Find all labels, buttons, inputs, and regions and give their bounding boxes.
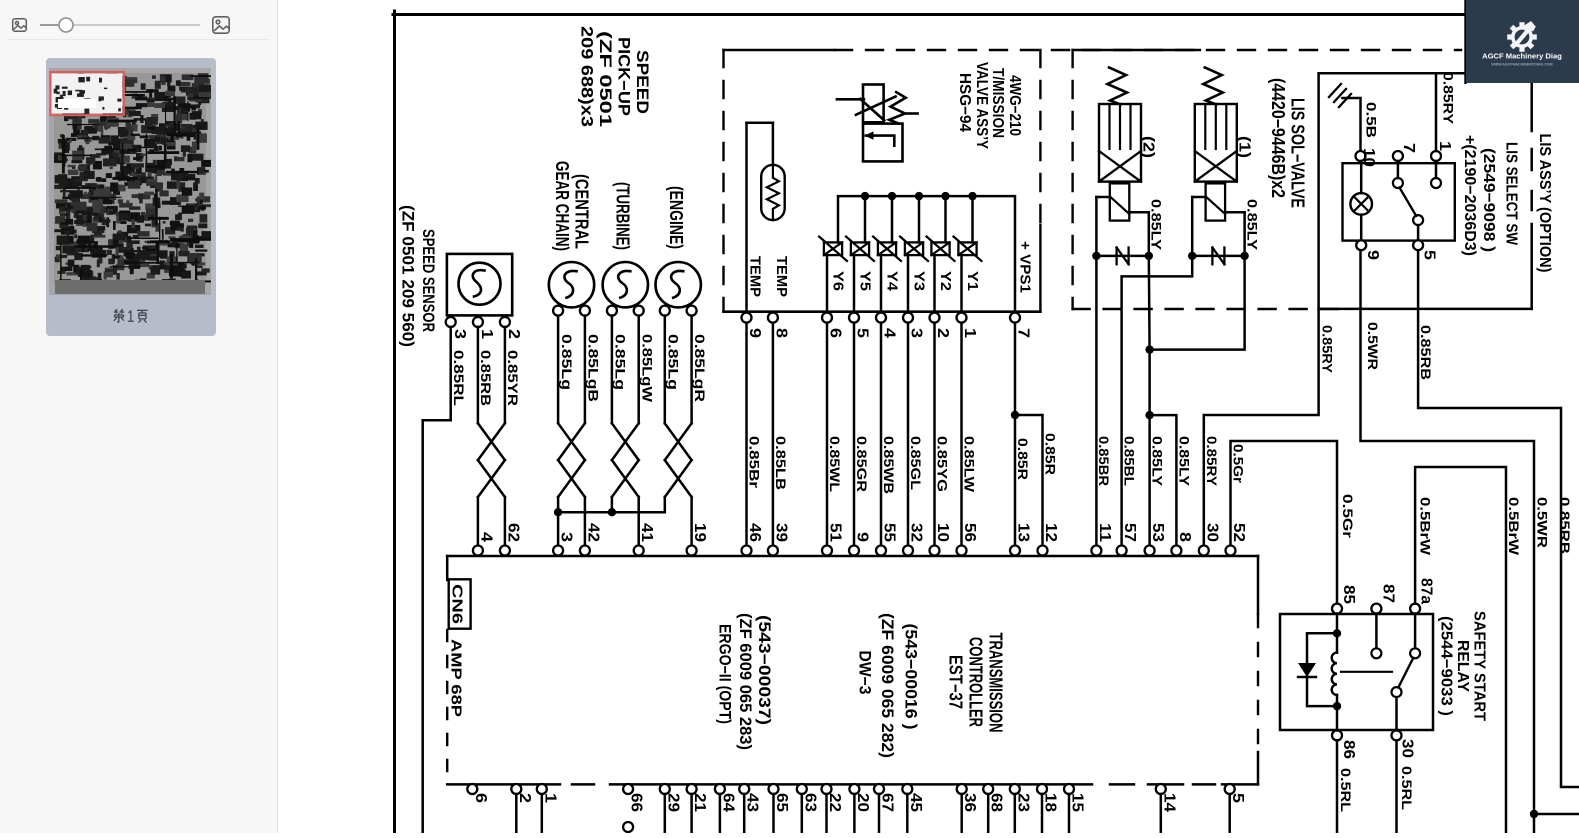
svg-text:62: 62 (504, 523, 521, 542)
svg-text:3: 3 (908, 328, 925, 338)
svg-text:(CENTRAL: (CENTRAL (572, 174, 592, 249)
svg-text:87: 87 (1380, 584, 1397, 603)
svg-text:0.5BrW: 0.5BrW (1506, 497, 1522, 556)
svg-text:64: 64 (719, 793, 736, 812)
svg-text:0.5WR: 0.5WR (1535, 497, 1551, 548)
svg-text:(4420−9446B)x2: (4420−9446B)x2 (1268, 78, 1288, 198)
svg-text:9: 9 (746, 328, 763, 338)
svg-text:0.85Br: 0.85Br (747, 436, 763, 489)
svg-text:5: 5 (1421, 250, 1438, 260)
svg-text:Y1: Y1 (964, 271, 981, 291)
svg-text:0.85BR: 0.85BR (1096, 436, 1112, 486)
svg-text:SAFETY START: SAFETY START (1471, 611, 1488, 721)
svg-text:0.85LgR: 0.85LgR (692, 334, 708, 402)
svg-text:1: 1 (541, 793, 558, 803)
svg-text:0.85R: 0.85R (1015, 438, 1031, 480)
svg-text:4: 4 (881, 328, 898, 338)
svg-text:0.85LB: 0.85LB (773, 436, 789, 490)
svg-text:0.85RY: 0.85RY (1320, 325, 1336, 374)
svg-text:209 688)x3: 209 688)x3 (578, 26, 597, 127)
svg-text:(2549−9098 ): (2549−9098 ) (1480, 148, 1497, 252)
svg-text:20: 20 (854, 793, 871, 812)
svg-text:0.85YR: 0.85YR (505, 350, 521, 406)
svg-text:0.85LY: 0.85LY (1176, 436, 1192, 487)
svg-text:Y5: Y5 (857, 271, 874, 291)
svg-text:66: 66 (628, 793, 645, 812)
svg-text:TRANSMISSION: TRANSMISSION (986, 633, 1006, 733)
svg-text:0.85LY: 0.85LY (1149, 199, 1165, 251)
svg-text:Y3: Y3 (911, 271, 928, 291)
svg-text:65: 65 (773, 793, 790, 812)
svg-text:6: 6 (472, 793, 489, 803)
svg-text:0.85LY: 0.85LY (1150, 436, 1166, 487)
svg-text:22: 22 (826, 793, 843, 812)
svg-text:SPEED: SPEED (633, 50, 652, 114)
svg-text:52: 52 (1230, 523, 1247, 542)
svg-text:0.85GL: 0.85GL (908, 436, 924, 491)
svg-text:5: 5 (854, 328, 871, 338)
svg-text:EST−37: EST−37 (946, 655, 966, 709)
svg-text:36: 36 (961, 793, 978, 812)
svg-text:51: 51 (827, 523, 844, 542)
svg-text:AGCF Machinery Diag: AGCF Machinery Diag (1482, 52, 1562, 61)
svg-text:0.5B: 0.5B (1364, 102, 1380, 138)
svg-text:Y6: Y6 (830, 271, 847, 291)
svg-text:(1): (1) (1235, 136, 1252, 158)
svg-text:0.85R: 0.85R (1043, 433, 1059, 475)
svg-text:23: 23 (1014, 793, 1031, 812)
svg-text:3: 3 (558, 532, 575, 542)
svg-text:6: 6 (827, 328, 844, 338)
svg-text:TEMP: TEMP (773, 256, 790, 297)
svg-text:13: 13 (1015, 523, 1032, 542)
svg-text:0.85RB: 0.85RB (1557, 497, 1573, 554)
svg-text:45: 45 (907, 793, 924, 812)
svg-text:1: 1 (478, 329, 495, 339)
svg-text:(2): (2) (1140, 136, 1157, 158)
svg-text:0.5RL: 0.5RL (1399, 766, 1415, 811)
svg-text:(543−00016 ): (543−00016 ) (902, 624, 921, 730)
svg-text:19: 19 (691, 523, 708, 542)
svg-text:3: 3 (451, 329, 468, 339)
svg-text:(543−00037): (543−00037) (755, 615, 774, 725)
svg-text:0.85LW: 0.85LW (962, 436, 978, 493)
svg-text:AMP 68P: AMP 68P (448, 639, 465, 717)
svg-text:14: 14 (1160, 793, 1177, 812)
svg-text:56: 56 (961, 523, 978, 542)
svg-text:0.85WB: 0.85WB (881, 436, 897, 494)
svg-text:2: 2 (516, 793, 533, 803)
svg-text:PICK−UP: PICK−UP (615, 37, 634, 116)
svg-text:43: 43 (744, 793, 761, 812)
svg-text:9: 9 (854, 532, 871, 542)
svg-text:0.85BL: 0.85BL (1122, 436, 1138, 486)
svg-text:0.85LgW: 0.85LgW (639, 334, 655, 403)
svg-text:57: 57 (1121, 523, 1138, 542)
svg-text:0.85Lg: 0.85Lg (559, 334, 575, 390)
svg-text:(ZF 0501 209 560): (ZF 0501 209 560) (399, 205, 418, 347)
svg-text:0.5Gr: 0.5Gr (1231, 444, 1247, 484)
svg-text:1: 1 (1436, 141, 1453, 151)
svg-text:39: 39 (772, 523, 789, 542)
svg-text:0.85RY: 0.85RY (1204, 436, 1220, 487)
svg-text:GEAR CHAIN): GEAR CHAIN) (552, 161, 572, 251)
svg-text:12: 12 (1042, 523, 1059, 542)
svg-text:21: 21 (691, 793, 708, 812)
svg-text:11: 11 (1096, 523, 1113, 542)
svg-text:+ VPS1: + VPS1 (1017, 241, 1034, 293)
svg-text:46: 46 (746, 523, 763, 542)
svg-text:2: 2 (934, 328, 951, 338)
svg-text:29: 29 (664, 793, 681, 812)
svg-text:0.85WL: 0.85WL (827, 436, 843, 493)
svg-text:1: 1 (961, 328, 978, 338)
svg-text:(2544−9033 ): (2544−9033 ) (1438, 616, 1455, 716)
svg-text:Y4: Y4 (884, 271, 901, 292)
svg-text:0.85RB: 0.85RB (478, 350, 494, 406)
svg-text:LIS SELECT SW: LIS SELECT SW (1503, 142, 1520, 246)
svg-text:4: 4 (477, 532, 494, 542)
svg-text:RELAY: RELAY (1454, 640, 1471, 692)
svg-text:0.5Gr: 0.5Gr (1340, 494, 1356, 539)
svg-text:0.85RL: 0.85RL (451, 350, 467, 407)
svg-text:86: 86 (1340, 740, 1357, 759)
svg-text:HSG−94: HSG−94 (956, 73, 973, 132)
svg-text:(ZF 6009 065 283): (ZF 6009 065 283) (736, 613, 755, 750)
svg-text:0.85YG: 0.85YG (935, 436, 951, 492)
svg-text:(TURBINE): (TURBINE) (613, 182, 633, 250)
svg-text:CN6: CN6 (449, 584, 466, 624)
svg-text:SPEED SENSOR: SPEED SENSOR (419, 229, 438, 332)
svg-text:4WG−210: 4WG−210 (1006, 75, 1023, 136)
svg-text:CONTROLLER: CONTROLLER (966, 637, 986, 727)
svg-text:0.85LgB: 0.85LgB (586, 334, 602, 402)
svg-text:LIS SOL−VALVE: LIS SOL−VALVE (1288, 98, 1308, 208)
svg-text:85: 85 (1340, 585, 1357, 604)
svg-text:0.85Lg: 0.85Lg (665, 334, 681, 390)
svg-text:(ENGINE): (ENGINE) (666, 186, 686, 249)
svg-text:WWW.AGCFMACHINERYDIAG.COM: WWW.AGCFMACHINERYDIAG.COM (1491, 63, 1552, 67)
svg-text:42: 42 (584, 523, 601, 542)
svg-text:(ZF 6009 065 282): (ZF 6009 065 282) (878, 613, 897, 758)
svg-text:0.5WR: 0.5WR (1365, 322, 1381, 370)
svg-text:DW−3: DW−3 (856, 651, 875, 695)
svg-text:0.85Lg: 0.85Lg (613, 334, 629, 390)
svg-text:63: 63 (801, 793, 818, 812)
svg-text:7: 7 (1015, 328, 1032, 338)
svg-text:0.85LY: 0.85LY (1245, 199, 1261, 251)
svg-text:8: 8 (1176, 532, 1193, 542)
svg-text:7: 7 (1400, 143, 1417, 153)
svg-text:15: 15 (1069, 793, 1086, 812)
svg-text:67: 67 (879, 793, 896, 812)
svg-text:30: 30 (1399, 739, 1416, 758)
svg-text:(ZF 0501: (ZF 0501 (596, 31, 615, 127)
svg-text:Y2: Y2 (937, 271, 954, 291)
svg-text:0.5BrW: 0.5BrW (1418, 497, 1434, 556)
svg-text:32: 32 (908, 523, 925, 542)
svg-text:0.85RB: 0.85RB (1418, 325, 1434, 380)
svg-text:TEMP: TEMP (747, 256, 764, 297)
svg-text:LIS ASSʼY (OPTION): LIS ASSʼY (OPTION) (1536, 134, 1553, 273)
svg-text:53: 53 (1149, 523, 1166, 542)
svg-text:+(2190−2036D3): +(2190−2036D3) (1461, 135, 1478, 256)
svg-text:T/MISSION: T/MISSION (989, 68, 1006, 138)
svg-text:2: 2 (505, 329, 522, 339)
svg-text:10: 10 (1360, 148, 1377, 167)
svg-text:VALVE ASSʼY: VALVE ASSʼY (973, 62, 990, 149)
svg-text:41: 41 (638, 523, 655, 542)
svg-text:8: 8 (772, 328, 789, 338)
svg-text:30: 30 (1203, 523, 1220, 542)
svg-text:0.5RL: 0.5RL (1338, 768, 1354, 813)
svg-text:87a: 87a (1418, 578, 1435, 604)
svg-text:10: 10 (934, 523, 951, 542)
svg-text:ERGO−II (OPT): ERGO−II (OPT) (716, 624, 735, 724)
svg-text:9: 9 (1364, 250, 1381, 260)
svg-text:0.85GR: 0.85GR (854, 436, 870, 492)
svg-text:68: 68 (988, 793, 1005, 812)
svg-text:0.85RY: 0.85RY (1440, 72, 1456, 125)
svg-text:18: 18 (1042, 793, 1059, 812)
svg-text:5: 5 (1229, 793, 1246, 803)
svg-text:55: 55 (881, 523, 898, 542)
